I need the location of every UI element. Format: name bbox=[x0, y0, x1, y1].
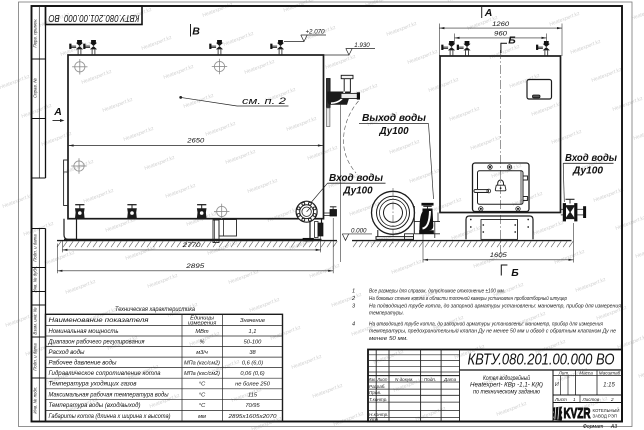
svg-text:А: А bbox=[484, 7, 493, 19]
svg-text:МВт: МВт bbox=[195, 329, 209, 335]
svg-text:м3/ч: м3/ч bbox=[196, 350, 208, 356]
svg-text:Изм.: Изм. bbox=[369, 377, 376, 382]
svg-text:0,06 (0,6): 0,06 (0,6) bbox=[240, 371, 264, 377]
svg-text:На боковых стенке котла в обла: На боковых стенке котла в области топочн… bbox=[369, 295, 567, 302]
svg-text:МПа (кгс/см2): МПа (кгс/см2) bbox=[184, 361, 220, 367]
svg-text:не более 250: не более 250 bbox=[235, 382, 271, 388]
svg-text:Все размеры для справок, допус: Все размеры для справок, допустимое откл… bbox=[369, 289, 505, 295]
svg-text:Б: Б bbox=[511, 267, 519, 279]
svg-text:Вход воды: Вход воды bbox=[329, 172, 383, 184]
svg-text:Значение: Значение bbox=[240, 318, 265, 324]
svg-text:2895: 2895 bbox=[185, 263, 205, 270]
svg-text:Ду100: Ду100 bbox=[572, 166, 603, 177]
svg-text:2770: 2770 bbox=[181, 242, 201, 249]
svg-text:1:15: 1:15 bbox=[603, 383, 615, 389]
svg-text:Дата: Дата bbox=[443, 377, 457, 382]
svg-text:И: И bbox=[555, 382, 559, 388]
svg-text:2650: 2650 bbox=[186, 138, 205, 145]
svg-text:2: 2 bbox=[610, 397, 614, 402]
svg-text:А3: А3 bbox=[610, 424, 617, 430]
svg-text:Heatexpert- КВр -1,1- К(К): Heatexpert- КВр -1,1- К(К) bbox=[470, 383, 543, 389]
svg-text:Рабочее давление воды: Рабочее давление воды bbox=[49, 360, 118, 367]
svg-text:1260: 1260 bbox=[492, 21, 510, 28]
svg-text:Разраб.: Разраб. bbox=[369, 384, 386, 389]
svg-text:Ду100: Ду100 bbox=[379, 126, 409, 137]
svg-text:Лит.: Лит. bbox=[558, 371, 570, 376]
svg-text:0,6 (6,0): 0,6 (6,0) bbox=[242, 361, 263, 367]
svg-text:Техническая характеристика: Техническая характеристика bbox=[115, 306, 195, 313]
svg-text:Максимальная рабочая температу: Максимальная рабочая температура воды bbox=[49, 391, 169, 398]
svg-text:Котел водогрейный: Котел водогрейный bbox=[483, 375, 531, 382]
svg-text:Взам. инв. №: Взам. инв. № bbox=[33, 307, 38, 334]
svg-text:см. п. 2: см. п. 2 bbox=[242, 96, 287, 107]
svg-text:115: 115 bbox=[248, 392, 258, 398]
svg-text:Т.контр.: Т.контр. bbox=[369, 397, 388, 402]
svg-text:Температура воды (вход/выход): Температура воды (вход/выход) bbox=[49, 402, 141, 409]
svg-text:1: 1 bbox=[573, 397, 576, 402]
svg-text:Лист: Лист bbox=[554, 397, 567, 402]
svg-text:КОТЕЛЬНЫЙ: КОТЕЛЬНЫЙ bbox=[593, 408, 620, 413]
svg-text:°С: °С bbox=[199, 403, 206, 409]
svg-text:ЗАВОД РЭП: ЗАВОД РЭП bbox=[593, 413, 618, 418]
svg-text:%: % bbox=[199, 339, 204, 345]
svg-text:Гидравлическое сопротивление к: Гидравлическое сопротивление котла bbox=[49, 370, 162, 377]
svg-text:Б: Б bbox=[508, 35, 516, 47]
svg-text:измерения: измерения bbox=[188, 321, 216, 327]
svg-text:менее 50 мм.: менее 50 мм. bbox=[369, 336, 408, 342]
svg-text:Ду100: Ду100 bbox=[343, 186, 373, 197]
svg-text:Наименование показателя: Наименование показателя bbox=[49, 317, 150, 324]
svg-text:КВТУ.080.201.00.000 ВО: КВТУ.080.201.00.000 ВО bbox=[48, 12, 139, 23]
svg-text:Перв. примен.: Перв. примен. bbox=[33, 18, 38, 47]
svg-text:Вход воды: Вход воды bbox=[565, 152, 617, 164]
svg-text:+2.070: +2.070 bbox=[305, 29, 325, 36]
svg-text:Подп. и дата: Подп. и дата bbox=[33, 234, 38, 262]
svg-text:Формат: Формат bbox=[583, 424, 604, 430]
svg-text:1,1: 1,1 bbox=[249, 329, 257, 335]
svg-text:Габариты котла (длинна х ширин: Габариты котла (длинна х ширина х высота… bbox=[49, 413, 171, 420]
svg-text:Подп. и дата: Подп. и дата bbox=[33, 343, 38, 371]
svg-text:Расход воды: Расход воды bbox=[49, 349, 86, 356]
svg-text:1605: 1605 bbox=[490, 252, 508, 259]
svg-text:Масштаб: Масштаб bbox=[599, 371, 621, 376]
svg-text:На отводящей трубе котла, до з: На отводящей трубе котла, до запорной ар… bbox=[369, 320, 603, 327]
svg-text:Инв. № дубл.: Инв. № дубл. bbox=[33, 265, 38, 292]
svg-text:Лист: Лист bbox=[377, 377, 388, 382]
svg-text:38: 38 bbox=[249, 350, 256, 356]
svg-text:960: 960 bbox=[494, 31, 508, 38]
svg-text:Справ. №: Справ. № bbox=[33, 78, 38, 98]
svg-text:Диапазон рабочего регулировани: Диапазон рабочего регулирования bbox=[48, 338, 146, 345]
svg-text:Подп.: Подп. bbox=[424, 377, 436, 382]
svg-text:мм: мм bbox=[198, 414, 206, 420]
svg-text:МПа (кгс/см2): МПа (кгс/см2) bbox=[184, 371, 220, 377]
svg-text:Инв. № подл.: Инв. № подл. bbox=[33, 386, 38, 413]
svg-text:N докум.: N докум. bbox=[395, 377, 414, 382]
svg-text:°С: °С bbox=[199, 392, 206, 398]
svg-text:Масса: Масса bbox=[579, 371, 593, 376]
svg-text:А: А bbox=[53, 106, 62, 118]
svg-text:Выход воды: Выход воды bbox=[362, 112, 426, 124]
svg-text:1.930: 1.930 bbox=[354, 42, 370, 49]
svg-text:Номинальная мощность: Номинальная мощность bbox=[49, 328, 119, 335]
svg-text:2895х1605х2070: 2895х1605х2070 bbox=[227, 414, 277, 420]
svg-text:Пров.: Пров. bbox=[369, 390, 381, 395]
svg-text:4: 4 bbox=[352, 321, 355, 327]
svg-text:Утв.: Утв. bbox=[369, 417, 379, 422]
svg-text:температуры.: температуры. bbox=[369, 311, 404, 317]
svg-text:В: В bbox=[192, 26, 200, 38]
svg-text:температуры, предохранительный: температуры, предохранительный клапан Ду… bbox=[369, 328, 616, 335]
svg-text:Листов: Листов bbox=[582, 397, 600, 402]
svg-text:0.000: 0.000 bbox=[351, 228, 367, 235]
svg-text:На подводящей трубе котла, д: На подводящей трубе котла, до запорной а… bbox=[369, 303, 621, 310]
svg-text:KVZR: KVZR bbox=[564, 405, 591, 422]
svg-text:КВТУ.080.201.00.000 ВО: КВТУ.080.201.00.000 ВО bbox=[468, 352, 615, 369]
svg-text:Температура уходящих газов: Температура уходящих газов bbox=[49, 381, 137, 388]
svg-text:°С: °С bbox=[199, 382, 206, 388]
svg-text:50-100: 50-100 bbox=[244, 339, 263, 345]
svg-text:по техническому заданию: по техническому заданию bbox=[473, 389, 540, 395]
svg-text:70/95: 70/95 bbox=[245, 403, 260, 409]
svg-text:1: 1 bbox=[352, 289, 355, 295]
